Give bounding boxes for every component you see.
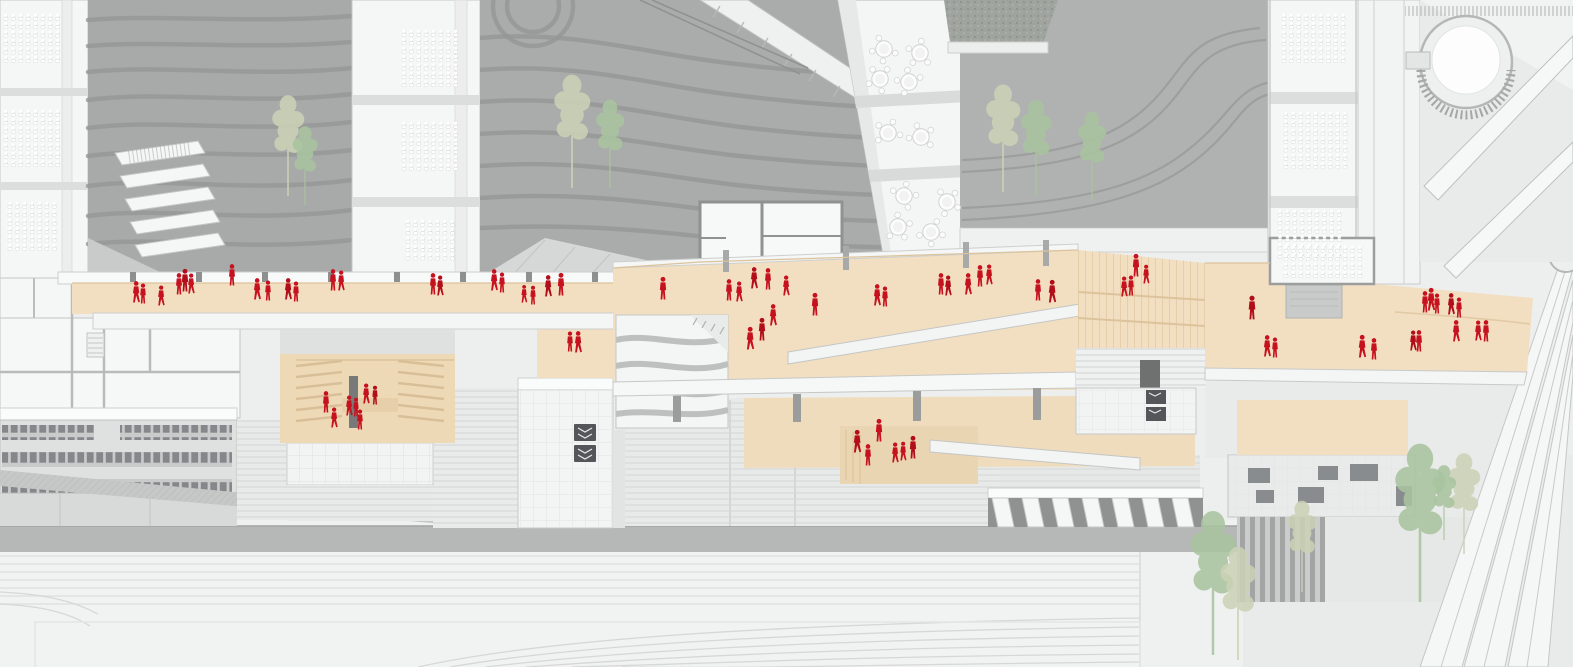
promenade-platform [537,283,613,378]
campus-sectional-axonometric [0,0,1573,667]
granite-roof [944,0,1058,46]
campus-road-band [0,526,1243,552]
vertical-fin-wall [1237,517,1325,602]
elevator-tower [518,378,625,528]
roof-parapet [0,408,237,420]
courtyard-west [88,0,352,272]
wavy-stair-structure [616,315,728,428]
small-stair-plan [87,333,104,357]
southeast-roof-terrace [1237,400,1408,455]
undercroft-pilotis [988,488,1203,527]
desk-grid [1284,112,1347,169]
lecture-drum-plaza [1405,0,1573,278]
walkway-slab-edge [93,313,620,329]
east-stepped-terrace [1078,250,1205,348]
stair-recess [1286,285,1342,318]
tiled-block-east [1076,388,1196,434]
lift-shaft [1140,360,1160,390]
lower-terrace [840,426,978,484]
railing-hatch [1405,6,1573,16]
architectural-rendering-canvas [0,0,1573,667]
classroom-band-mid [352,0,480,278]
